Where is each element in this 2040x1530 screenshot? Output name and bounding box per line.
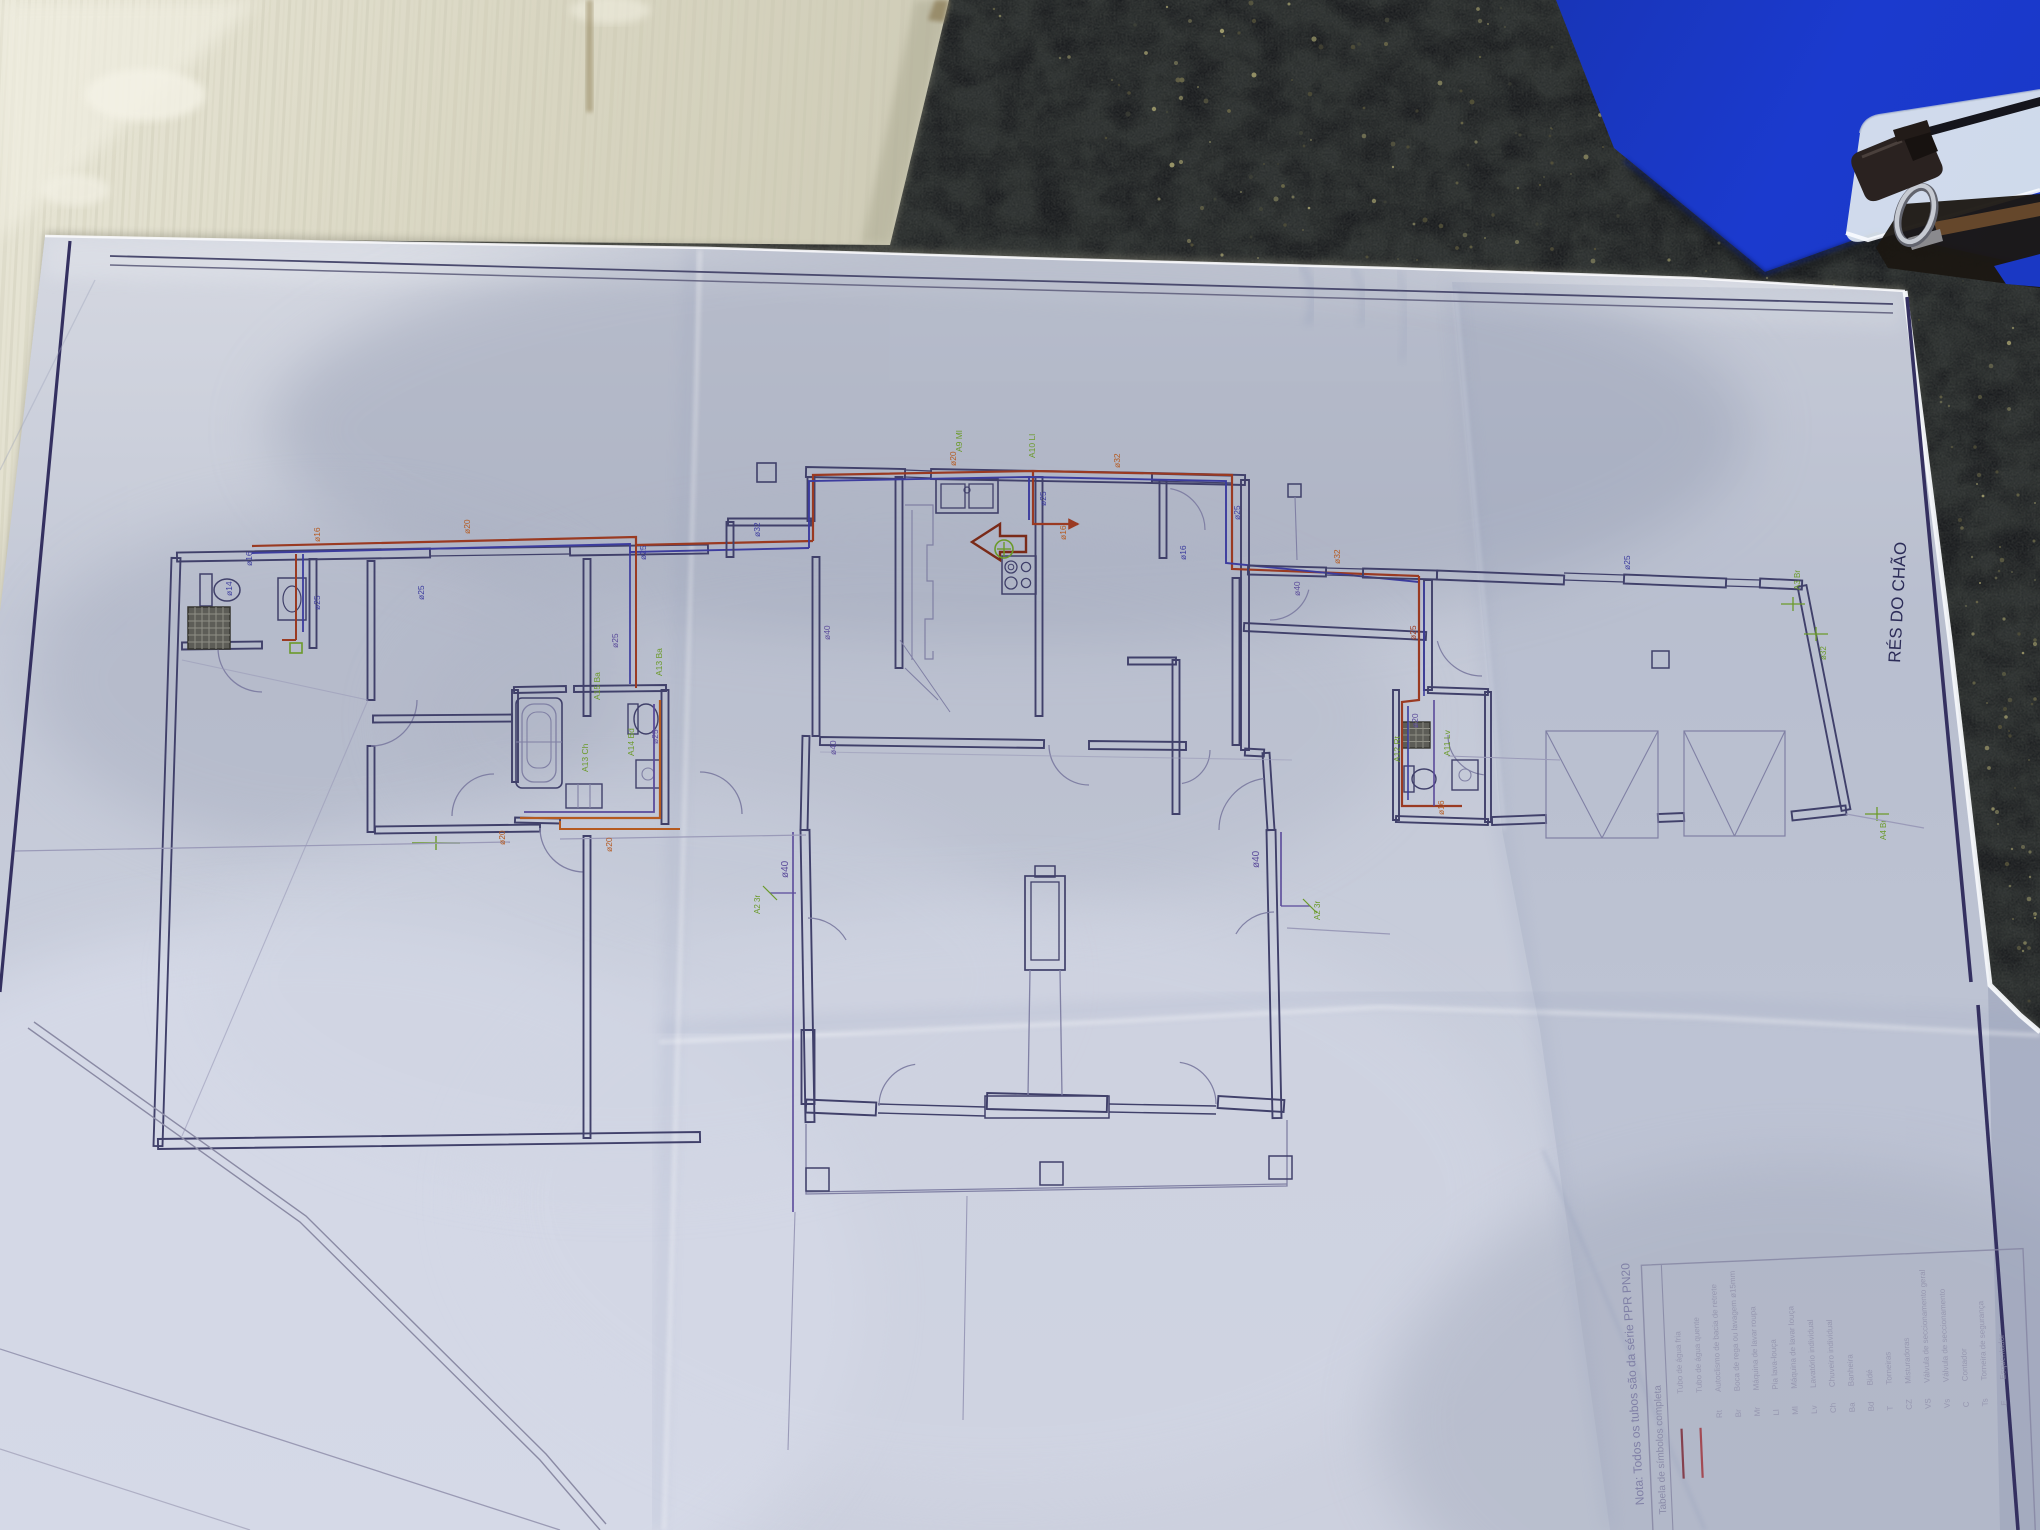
svg-text:Vs: Vs: [1942, 1399, 1951, 1409]
svg-text:A4 Br: A4 Br: [1879, 820, 1888, 840]
svg-text:ø25: ø25: [1232, 505, 1242, 520]
svg-text:ø16: ø16: [1436, 800, 1446, 815]
svg-text:A12 Rt: A12 Rt: [1392, 735, 1402, 762]
svg-text:ø16: ø16: [1058, 525, 1068, 540]
svg-text:ø25: ø25: [610, 633, 620, 648]
svg-text:E: E: [2000, 1400, 2009, 1406]
svg-text:Ba: Ba: [1848, 1402, 1857, 1413]
svg-text:CZ: CZ: [1904, 1399, 1913, 1410]
svg-text:ø25: ø25: [312, 595, 322, 610]
svg-text:ø40: ø40: [828, 740, 838, 755]
svg-text:ø20: ø20: [462, 519, 472, 534]
svg-text:ø25: ø25: [638, 545, 648, 560]
svg-text:ø40: ø40: [1251, 850, 1262, 868]
svg-text:Br: Br: [1734, 1409, 1743, 1418]
svg-text:ø25: ø25: [1408, 625, 1418, 640]
svg-text:Bidé: Bidé: [1865, 1369, 1875, 1386]
svg-text:ø16: ø16: [244, 551, 254, 566]
svg-text:A9 Ml: A9 Ml: [954, 430, 964, 452]
svg-text:Lv: Lv: [1810, 1405, 1819, 1414]
svg-text:ø14: ø14: [224, 581, 234, 596]
svg-text:ø25: ø25: [416, 585, 426, 600]
svg-text:Banheira: Banheira: [1845, 1353, 1855, 1386]
svg-text:A14 Bd: A14 Bd: [626, 728, 636, 756]
svg-text:ø32: ø32: [1332, 549, 1342, 564]
svg-text:ø32: ø32: [752, 522, 762, 537]
svg-text:ø40: ø40: [822, 625, 832, 640]
svg-text:ø20: ø20: [604, 837, 614, 852]
svg-text:ø32: ø32: [1112, 453, 1122, 468]
svg-text:ø25: ø25: [1038, 491, 1048, 506]
svg-text:Ch: Ch: [1829, 1403, 1838, 1414]
svg-text:ø25: ø25: [1622, 555, 1632, 570]
svg-text:Contador: Contador: [1959, 1348, 1969, 1382]
svg-text:ø32: ø32: [1819, 646, 1828, 660]
svg-text:A13 Ch: A13 Ch: [580, 743, 590, 772]
svg-text:ø16: ø16: [312, 527, 322, 542]
svg-text:Ts: Ts: [1980, 1398, 1989, 1406]
svg-text:ø40: ø40: [1292, 581, 1302, 596]
svg-text:A2 3r: A2 3r: [753, 895, 762, 914]
svg-text:ø20: ø20: [1410, 713, 1420, 728]
svg-text:T: T: [1886, 1405, 1895, 1410]
svg-text:Rt: Rt: [1715, 1409, 1724, 1418]
svg-text:A15 Ba: A15 Ba: [592, 672, 602, 700]
svg-text:A3 Br: A3 Br: [1793, 570, 1802, 590]
svg-text:ø25: ø25: [650, 729, 660, 744]
svg-text:Ml: Ml: [1791, 1406, 1800, 1415]
svg-text:Ll: Ll: [1772, 1409, 1781, 1416]
svg-text:Bd: Bd: [1867, 1401, 1876, 1411]
svg-text:ø16: ø16: [1178, 545, 1188, 560]
svg-text:A2 3r: A2 3r: [1313, 901, 1322, 920]
svg-text:ø20: ø20: [948, 451, 958, 466]
svg-text:ø20: ø20: [497, 830, 507, 845]
svg-text:A11 Lv: A11 Lv: [1442, 729, 1452, 756]
svg-text:Mr: Mr: [1753, 1407, 1762, 1417]
svg-text:Torneiras: Torneiras: [1883, 1352, 1893, 1385]
svg-text:C: C: [1962, 1401, 1971, 1407]
svg-text:VS: VS: [1923, 1398, 1932, 1409]
svg-text:ø40: ø40: [780, 860, 791, 878]
svg-text:A10 Ll: A10 Ll: [1027, 434, 1037, 458]
svg-text:A13 Ba: A13 Ba: [654, 648, 664, 676]
